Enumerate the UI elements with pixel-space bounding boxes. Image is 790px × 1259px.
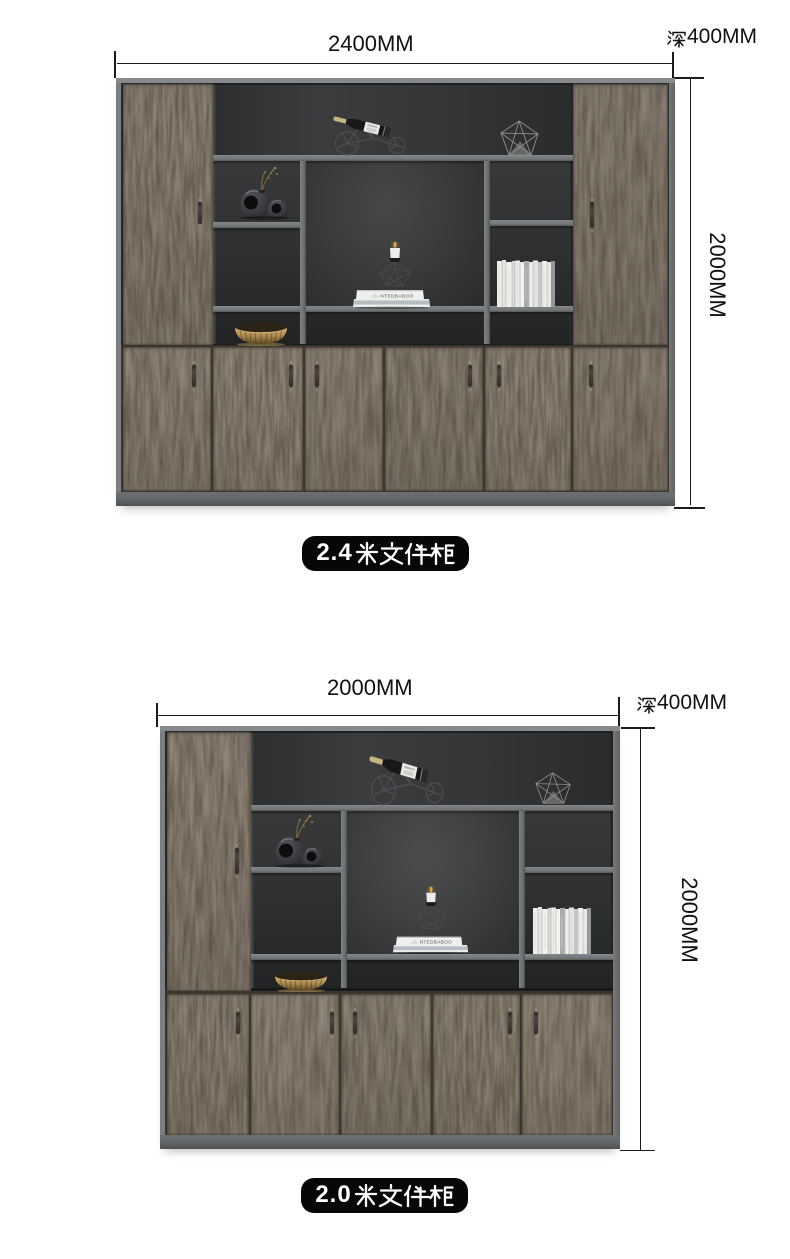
- svg-text:NTEDBABOO: NTEDBABOO: [420, 940, 453, 945]
- svg-text:NTEDBABOO: NTEDBABOO: [380, 293, 413, 299]
